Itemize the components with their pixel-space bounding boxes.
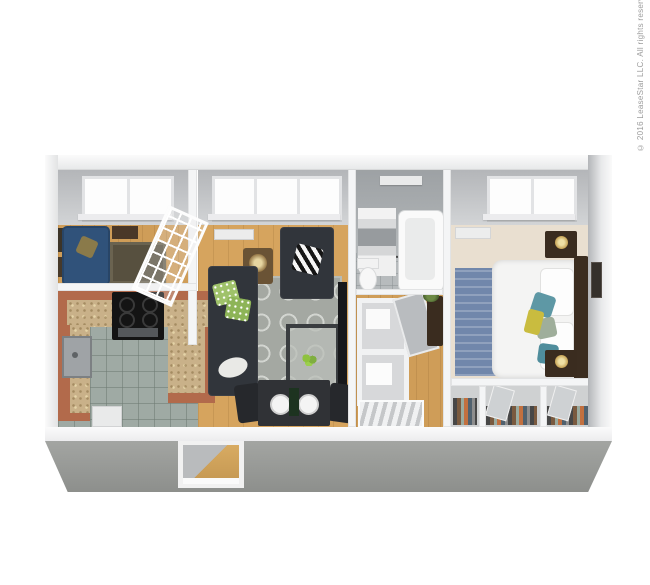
green-apples-decor xyxy=(300,352,318,366)
wall-bath-hall xyxy=(356,289,443,295)
living-window-sill xyxy=(208,214,340,220)
dinner-plate-1 xyxy=(270,394,291,415)
entry-threshold xyxy=(183,478,239,484)
burner xyxy=(119,312,135,328)
lamp-bottom xyxy=(555,355,568,368)
bathtub-basin xyxy=(405,218,435,280)
front-wall xyxy=(45,441,612,492)
exterior-wall-top xyxy=(45,155,612,169)
bedroom-window-sill xyxy=(483,214,575,220)
closet-clothes-1 xyxy=(453,398,477,425)
window-pane xyxy=(85,179,127,217)
oven-handle xyxy=(118,328,158,337)
table-centerpiece xyxy=(289,388,299,416)
closet-divider-2 xyxy=(540,386,547,427)
closet-divider-1 xyxy=(479,386,486,427)
den-window-sill xyxy=(78,214,172,220)
closet-shelf xyxy=(366,309,390,329)
ac-unit xyxy=(455,227,491,239)
baseboard-heater xyxy=(214,229,254,240)
exterior-wall-bottom-top-surface xyxy=(45,427,612,441)
sink-drain xyxy=(72,352,78,358)
wall-bedroom-closets xyxy=(451,378,590,386)
entry-door-panel xyxy=(183,445,239,478)
wall-hall-bedroom xyxy=(443,155,451,427)
window-pane xyxy=(300,179,339,217)
den-side-table xyxy=(112,226,138,239)
entry-door-opening xyxy=(183,445,239,478)
bedroom-wall-art xyxy=(591,262,602,298)
wall-living-hall xyxy=(348,155,356,427)
exterior-wall-left xyxy=(45,155,58,437)
floorplan-image: © 2016 LeaseStar LLC. All rights reserve… xyxy=(0,0,650,585)
lamp-top xyxy=(555,236,568,249)
entry-door-frame xyxy=(178,441,244,488)
window-pane xyxy=(257,179,296,217)
burner xyxy=(142,312,158,328)
dining-table xyxy=(258,380,330,426)
kitchen-sink xyxy=(62,336,92,378)
shower-shelf xyxy=(380,176,422,185)
window-pane xyxy=(534,179,575,217)
burner xyxy=(119,297,135,313)
window-pane xyxy=(490,179,531,217)
closet-shelf xyxy=(366,363,392,385)
toilet-bowl xyxy=(359,267,377,291)
dishwasher xyxy=(92,406,122,427)
dinner-plate-2 xyxy=(298,394,319,415)
green-pillow-2 xyxy=(224,296,251,322)
linen-closet-lower xyxy=(357,350,409,406)
console-cabinet xyxy=(427,296,443,346)
copyright-text: © 2016 LeaseStar LLC. All rights reserve… xyxy=(636,12,645,152)
bifold-doors xyxy=(358,400,424,428)
window-pane xyxy=(215,179,254,217)
tv xyxy=(338,282,347,394)
